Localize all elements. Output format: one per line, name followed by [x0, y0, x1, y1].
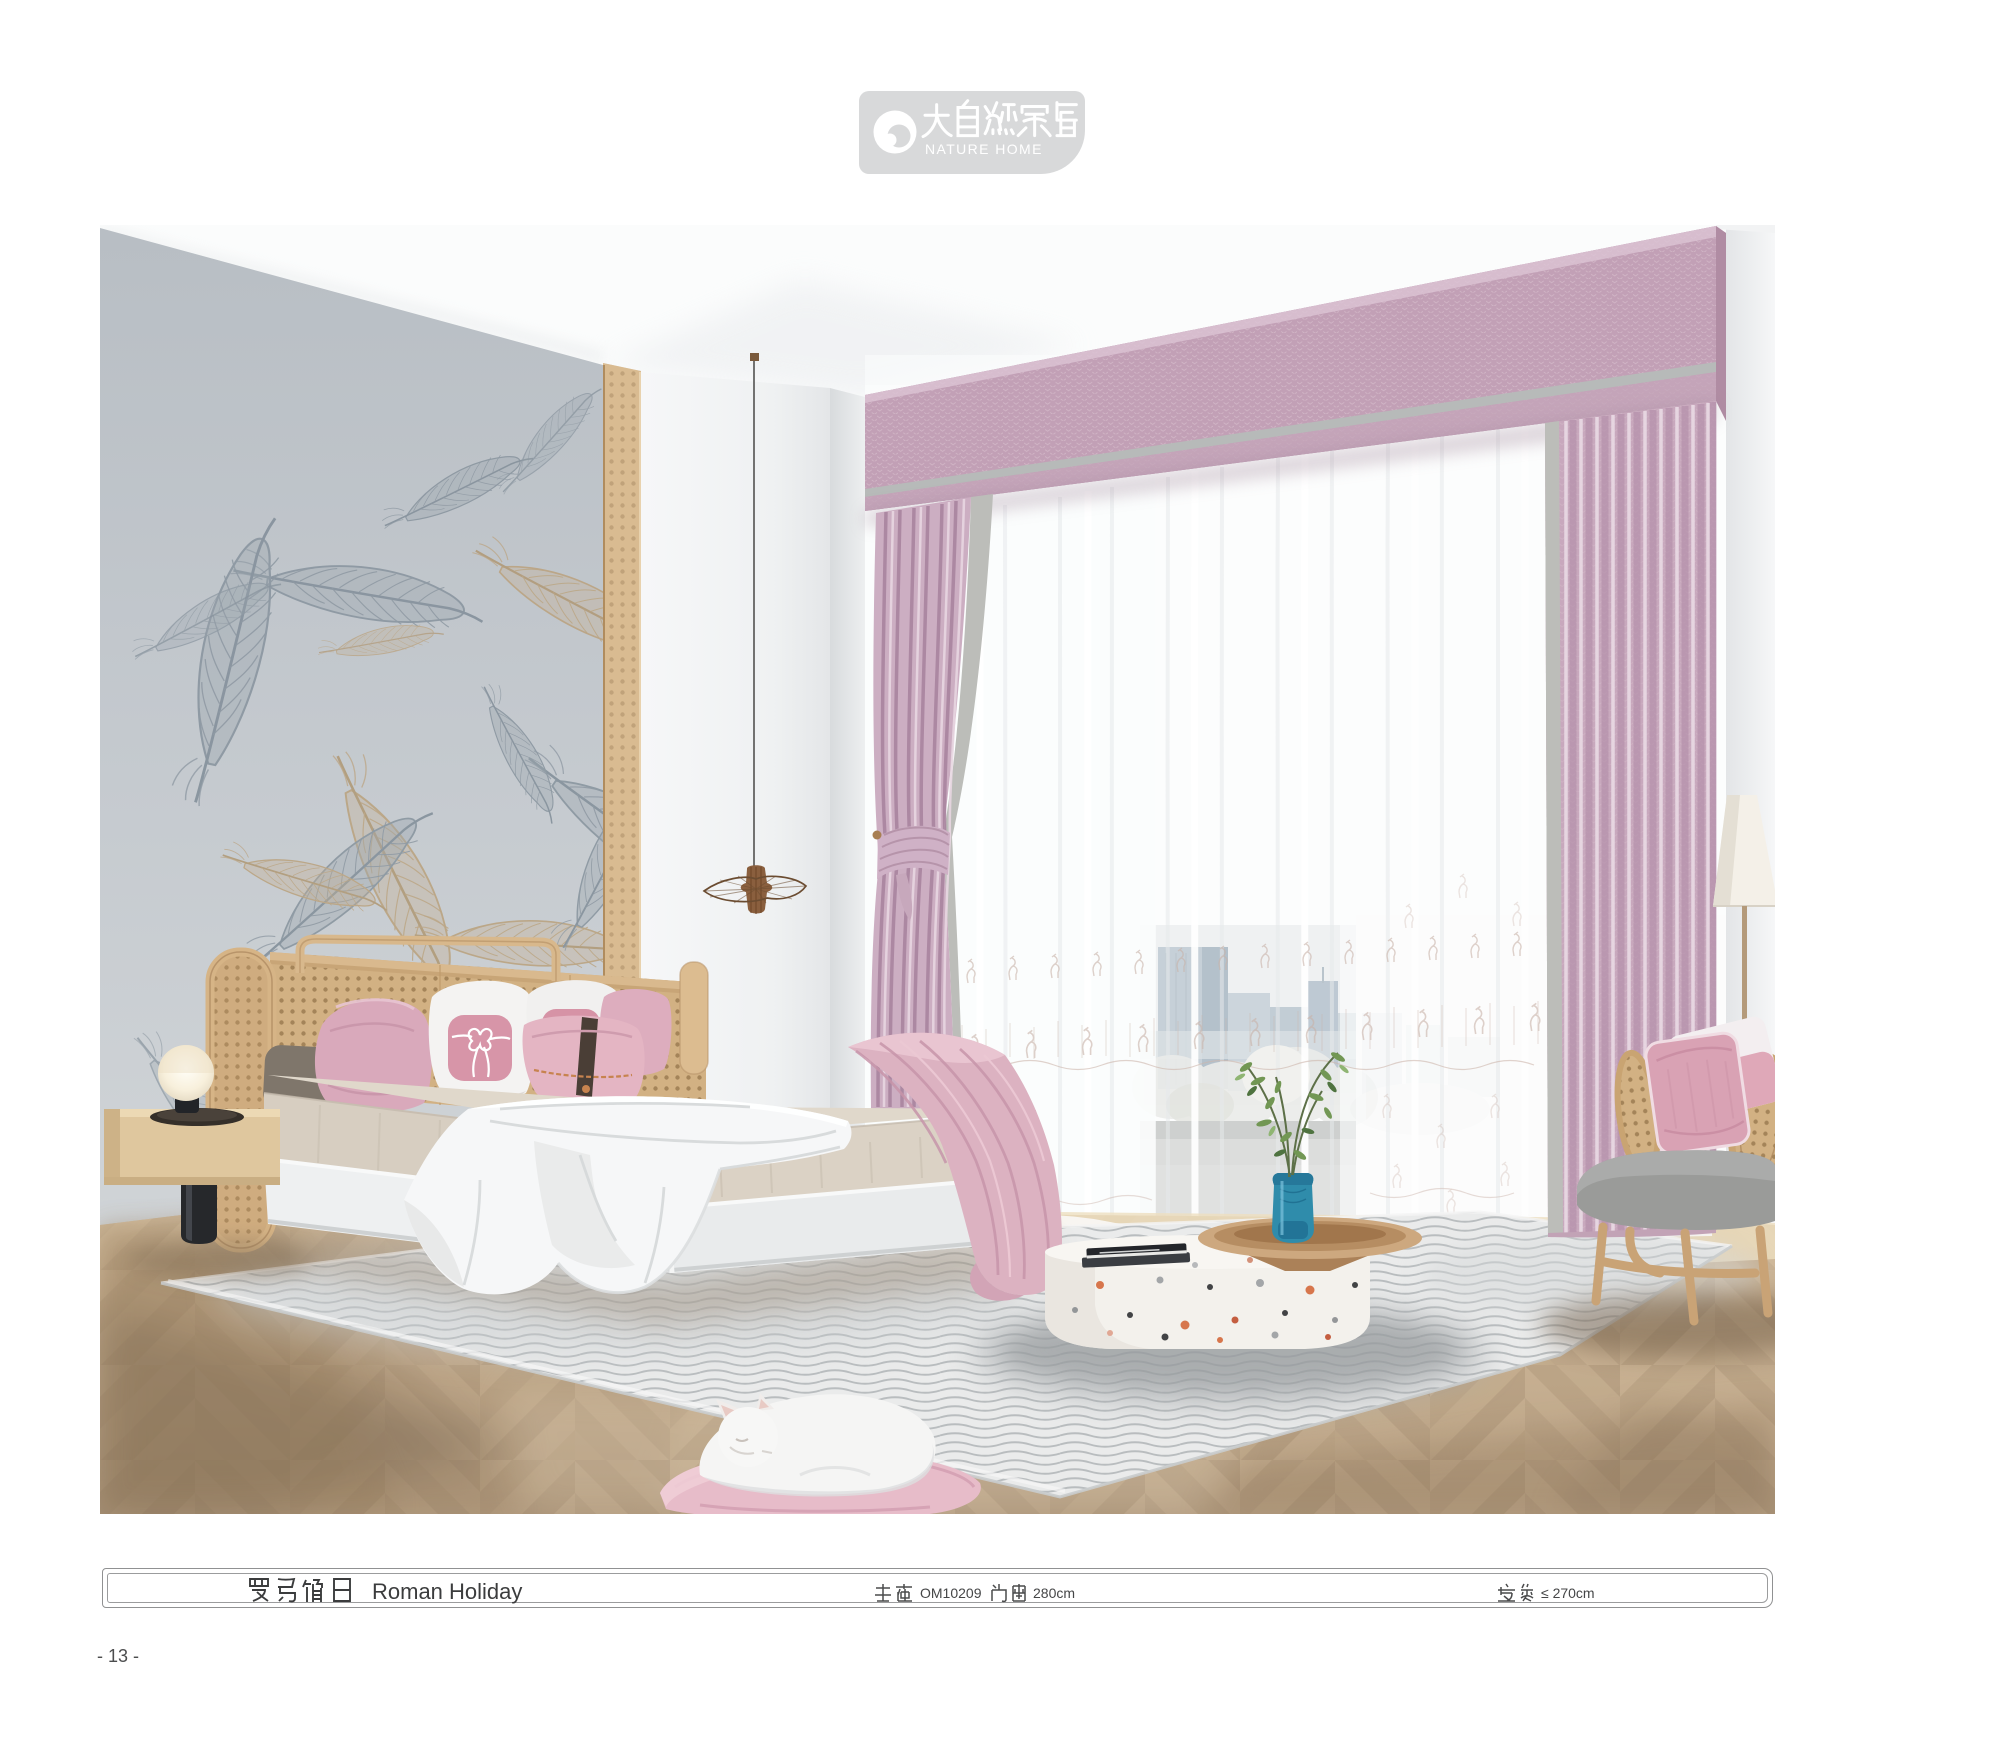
svg-text:OM10209: OM10209 [920, 1585, 982, 1601]
svg-text:NATURE HOME: NATURE HOME [925, 141, 1043, 157]
svg-text:280cm: 280cm [1033, 1585, 1075, 1601]
svg-text:≤ 270cm: ≤ 270cm [1541, 1585, 1595, 1601]
